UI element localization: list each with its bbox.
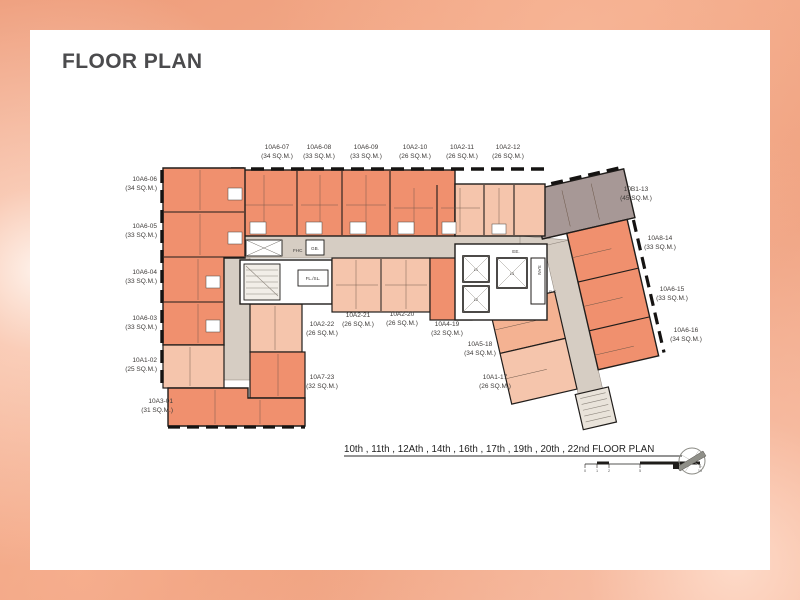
unit-label-top-2-id: 10A6-09 bbox=[354, 144, 379, 151]
fl-sl-label: FL./SL. bbox=[306, 276, 321, 281]
unit-label-bottom-0-area: (26 SQ.M.) bbox=[306, 330, 338, 337]
scale-tick-2: 2 bbox=[608, 469, 610, 473]
unit-label-right-2-id: 10A6-15 bbox=[660, 286, 685, 293]
unit-label-right-2-area: (33 SQ.M.) bbox=[656, 295, 688, 302]
unit-label-left-0-id: 10A6-06 bbox=[132, 176, 157, 183]
unit-label-left-2-area: (33 SQ.M.) bbox=[125, 278, 157, 285]
unit-label-left-1-area: (33 SQ.M.) bbox=[125, 232, 157, 239]
caption-floors: 10th , 11th , 12Ath , 14th , 16th , 17th… bbox=[344, 444, 592, 455]
unit-label-bottom-6-id: 10A1-17 bbox=[483, 374, 508, 381]
unit-label-bottom-2-area: (26 SQ.M.) bbox=[386, 320, 418, 327]
caption: 10th , 11th , 12Ath , 14th , 16th , 17th… bbox=[344, 444, 682, 456]
unit-label-top-3-id: 10A2-10 bbox=[403, 144, 428, 151]
unit-label-right-3-area: (34 SQ.M.) bbox=[670, 336, 702, 343]
fhc-right-label: FHC bbox=[549, 290, 557, 294]
unit-label-left-3-area: (33 SQ.M.) bbox=[125, 324, 157, 331]
unit-label-bottom-2-id: 10A2-20 bbox=[390, 311, 415, 318]
fhc-left-label: FHC bbox=[293, 248, 303, 253]
unit-label-top-3-area: (26 SQ.M.) bbox=[399, 153, 431, 160]
unit-label-top-5-id: 10A2-12 bbox=[496, 144, 521, 151]
unit-label-left-4-area: (25 SQ.M.) bbox=[125, 366, 157, 373]
svg-text:10th , 11th , 12Ath , 14th , 1: 10th , 11th , 12Ath , 14th , 16th , 17th… bbox=[344, 444, 654, 455]
unit-room-10A1-02 bbox=[163, 345, 224, 388]
unit-label-bottom-3-area: (32 SQ.M.) bbox=[431, 330, 463, 337]
gb-label: GB. bbox=[311, 246, 319, 251]
unit-label-right-1-area: (33 SQ.M.) bbox=[644, 244, 676, 251]
scale-tick-3: 5 bbox=[639, 469, 641, 473]
unit-label-right-0-area: (45 SQ.M.) bbox=[620, 195, 652, 202]
lift-l1-label: L1 bbox=[474, 268, 478, 272]
unit-label-bottom-4-area: (34 SQ.M.) bbox=[464, 350, 496, 357]
unit-label-top-1-id: 10A6-08 bbox=[307, 144, 332, 151]
unit-label-bottom-1-id: 10A2-21 bbox=[346, 312, 371, 319]
top-wing bbox=[230, 169, 545, 236]
unit-label-right-1-id: 10A8-14 bbox=[648, 235, 673, 242]
unit-label-bottom-4-id: 10A5-18 bbox=[468, 341, 493, 348]
caption-suffix: FLOOR PLAN bbox=[592, 444, 654, 455]
san-label: SAN bbox=[537, 265, 542, 274]
unit-label-left-1-id: 10A6-05 bbox=[132, 223, 157, 230]
unit-label-bottom-5-area: (32 SQ.M.) bbox=[306, 383, 338, 390]
unit-label-bottom-6-area: (26 SQ.M.) bbox=[479, 383, 511, 390]
lift-l3-label: L3 bbox=[510, 272, 514, 276]
unit-label-top-2-area: (33 SQ.M.) bbox=[350, 153, 382, 160]
unit-label-bottom-3-id: 10A4-19 bbox=[435, 321, 460, 328]
unit-label-top-4-area: (26 SQ.M.) bbox=[446, 153, 478, 160]
unit-label-left-4-id: 10A1-02 bbox=[132, 357, 157, 364]
unit-label-top-0-id: 10A6-07 bbox=[265, 144, 290, 151]
lift-core: EE. L1 L2 L3 SAN FHC bbox=[455, 244, 557, 320]
unit-labels-top: 10A6-07 (34 SQ.M.) 10A6-08 (33 SQ.M.) 10… bbox=[261, 144, 524, 160]
unit-label-right-3-id: 10A6-16 bbox=[674, 327, 699, 334]
stair-south bbox=[575, 387, 616, 430]
scale-segment-1 bbox=[597, 462, 609, 465]
unit-label-bottom-5-id: 10A7-23 bbox=[310, 374, 335, 381]
unit-room-10A7-23 bbox=[250, 352, 305, 398]
unit-label-bottom-0-id: 10A2-22 bbox=[310, 321, 335, 328]
unit-label-left-5-id: 10A3-01 bbox=[148, 398, 173, 405]
lift-l2-label: L2 bbox=[474, 298, 478, 302]
unit-label-left-3-id: 10A6-03 bbox=[132, 315, 157, 322]
ee-label: EE. bbox=[512, 249, 519, 254]
unit-label-top-4-id: 10A2-11 bbox=[450, 144, 474, 151]
unit-label-right-0-id: 10B1-13 bbox=[624, 186, 649, 193]
compass-base-square bbox=[673, 463, 679, 469]
unit-label-left-2-id: 10A6-04 bbox=[132, 269, 157, 276]
north-arrow-icon bbox=[673, 448, 706, 474]
scale-tick-1: 1 bbox=[596, 469, 598, 473]
unit-label-top-5-area: (26 SQ.M.) bbox=[492, 153, 524, 160]
unit-label-left-0-area: (34 SQ.M.) bbox=[125, 185, 157, 192]
floor-plan-canvas: FHC GB. FL./SL. EE. L1 L2 L3 SAN FHC bbox=[0, 0, 800, 600]
unit-room-10A2-22 bbox=[250, 304, 302, 352]
scale-tick-0: 0 bbox=[584, 469, 586, 473]
unit-label-top-1-area: (33 SQ.M.) bbox=[303, 153, 335, 160]
unit-labels-bottom: 10A2-22 (26 SQ.M.) 10A2-21 (26 SQ.M.) 10… bbox=[306, 311, 511, 390]
unit-label-top-0-area: (34 SQ.M.) bbox=[261, 153, 293, 160]
unit-label-bottom-1-area: (26 SQ.M.) bbox=[342, 321, 374, 328]
unit-label-left-5-area: (31 SQ.M.) bbox=[141, 407, 173, 414]
